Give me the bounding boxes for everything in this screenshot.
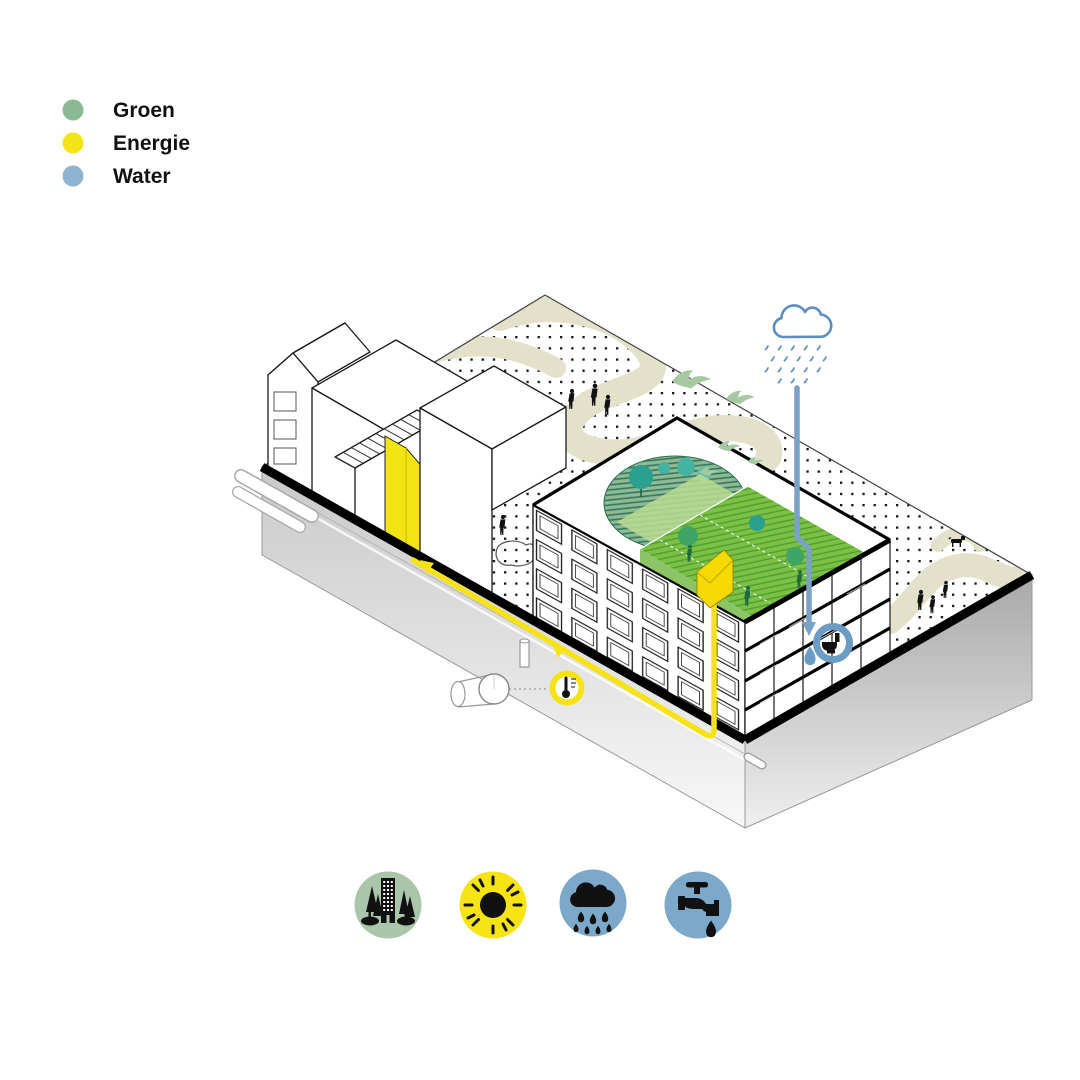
water-tap-icon <box>665 872 732 939</box>
legend-swatch-energie <box>63 133 84 154</box>
page: { "legend": { "items": [ {"id": "groen",… <box>0 0 1080 1080</box>
legend-label-water: Water <box>113 165 171 188</box>
legend: Groen Energie Water <box>63 99 191 188</box>
rain-drops <box>765 346 826 383</box>
diagram-canvas: Groen Energie Water <box>0 0 1080 1080</box>
legend-swatch-water <box>63 166 84 187</box>
isometric-diagram <box>238 295 1034 828</box>
rain-cloud-icon <box>774 305 831 337</box>
thermometer-marker <box>550 671 585 706</box>
footer-icons <box>355 870 732 939</box>
city-trees-icon <box>355 872 422 939</box>
legend-label-groen: Groen <box>113 99 175 122</box>
rain-cloud-footer-icon <box>560 870 627 937</box>
legend-label-energie: Energie <box>113 132 190 155</box>
legend-swatch-groen <box>63 100 84 121</box>
sun-icon <box>460 872 527 939</box>
